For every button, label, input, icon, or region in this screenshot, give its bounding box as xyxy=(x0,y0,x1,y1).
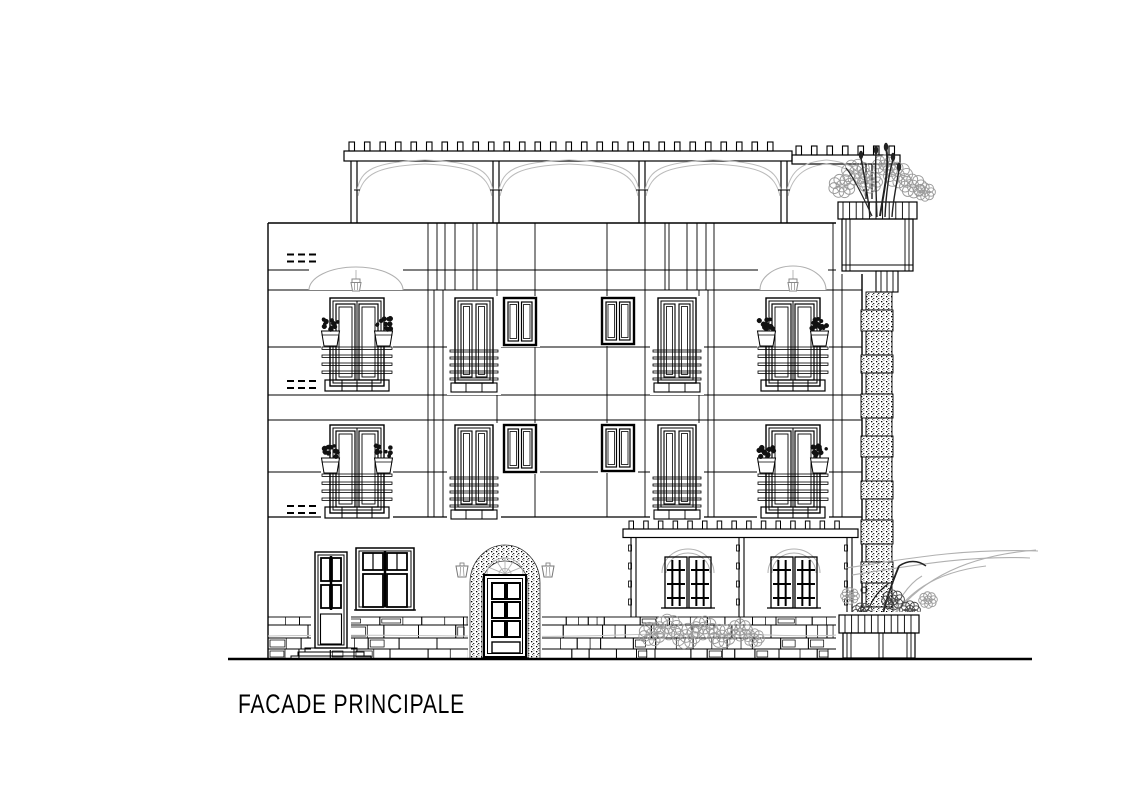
porch-pergola xyxy=(623,521,858,617)
rooftop-planter xyxy=(829,143,935,292)
rooftop-pergola xyxy=(344,142,900,223)
stone-column xyxy=(861,292,893,617)
ground-floor-left-door-and-window xyxy=(291,546,416,660)
main-entrance xyxy=(456,545,554,659)
drawing-title: FACADE PRINCIPALE xyxy=(238,689,465,719)
facade-elevation-drawing: FACADE PRINCIPALE xyxy=(0,0,1133,803)
garden-planter xyxy=(836,612,922,660)
third-floor-windows xyxy=(321,295,829,395)
